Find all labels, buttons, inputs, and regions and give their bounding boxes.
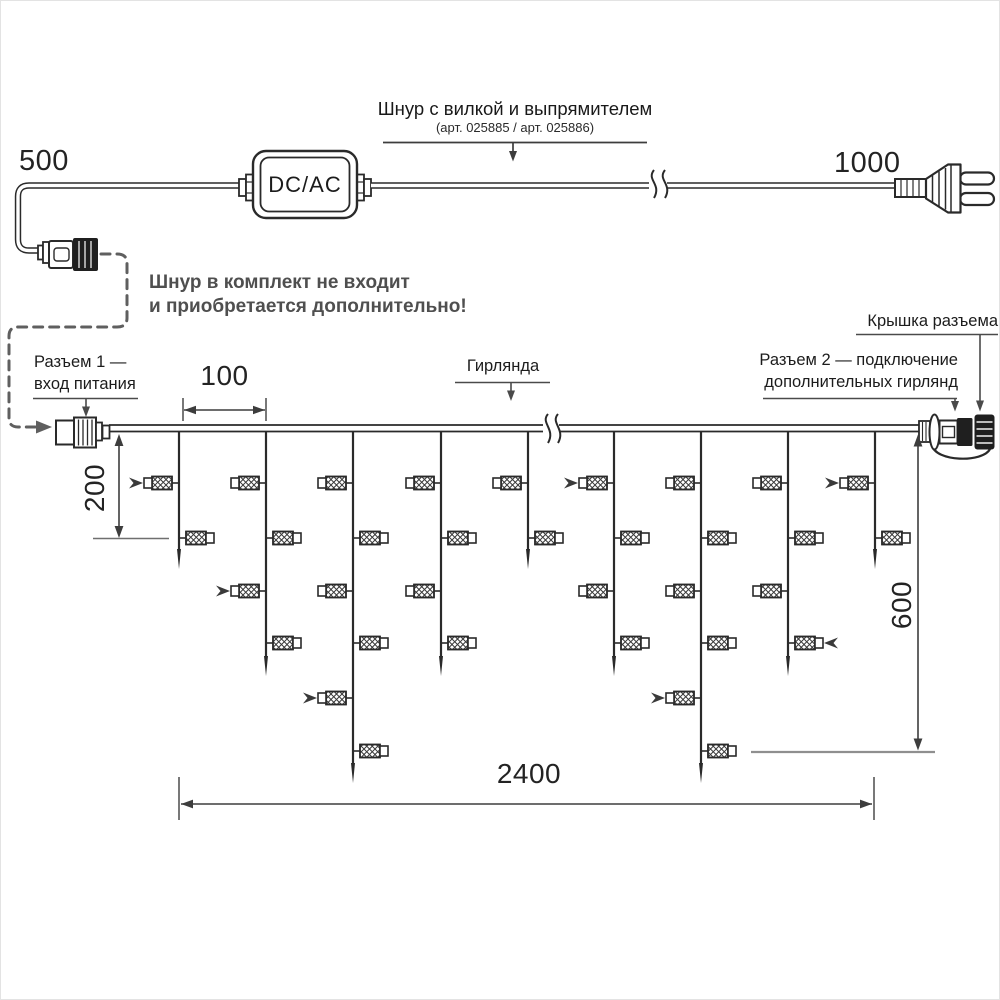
lamp-bulb bbox=[326, 477, 346, 490]
power-input-connector bbox=[38, 238, 98, 271]
lamp-bulb bbox=[360, 637, 380, 650]
dim-600-label: 600 bbox=[886, 565, 918, 645]
lamp-cap bbox=[728, 533, 736, 543]
wire-break-mark bbox=[556, 414, 561, 443]
arrow-down-icon bbox=[507, 391, 515, 402]
connector-1 bbox=[56, 418, 110, 448]
lamp-cap bbox=[902, 533, 910, 543]
lamp-cap bbox=[579, 478, 587, 488]
lamp-cap bbox=[231, 586, 239, 596]
lamp-bulb bbox=[761, 585, 781, 598]
lamp-bulb bbox=[708, 745, 728, 758]
lamp-cap bbox=[318, 586, 326, 596]
lamp-bulb bbox=[326, 692, 346, 705]
lamp-cap bbox=[728, 746, 736, 756]
note-line1: Шнур в комплект не входит bbox=[149, 271, 467, 295]
lamp-bulb bbox=[414, 477, 434, 490]
garland-drop bbox=[564, 431, 649, 676]
lamp-bulb bbox=[708, 637, 728, 650]
lamp-cap bbox=[666, 693, 674, 703]
note-line2: и приобретается дополнительно! bbox=[149, 295, 467, 319]
lamp-cap bbox=[753, 586, 761, 596]
arrow-right-icon bbox=[36, 421, 52, 434]
lamp-bulb bbox=[708, 532, 728, 545]
drop-tip bbox=[612, 656, 616, 676]
drop-tip bbox=[177, 549, 181, 569]
lamp-cap bbox=[380, 638, 388, 648]
lamp-bulb bbox=[535, 532, 555, 545]
connector1-label: Разъем 1 — вход питания bbox=[34, 352, 136, 395]
lamp-cap bbox=[579, 586, 587, 596]
drop-tip bbox=[351, 763, 355, 783]
mains-plug bbox=[895, 165, 994, 213]
garland-drop bbox=[406, 431, 476, 676]
garland-drop bbox=[651, 431, 736, 783]
connector2-label-line1: Разъем 2 — подключение bbox=[759, 350, 958, 372]
lamp-bulb bbox=[360, 532, 380, 545]
lamp-bulb bbox=[795, 532, 815, 545]
lamp-cap bbox=[815, 638, 823, 648]
cable-break-mark bbox=[663, 170, 668, 198]
cord-label: Шнур с вилкой и выпрямителем (арт. 02588… bbox=[375, 98, 655, 136]
drop-tip bbox=[873, 549, 877, 569]
cord-label-title: Шнур с вилкой и выпрямителем bbox=[375, 98, 655, 120]
lamp-cap bbox=[815, 533, 823, 543]
lamp-pointer-arrow-icon bbox=[129, 478, 143, 489]
lamp-pointer-arrow-icon bbox=[651, 693, 665, 704]
plug-prong bbox=[960, 173, 994, 185]
lamp-pointer-arrow-icon bbox=[824, 638, 838, 649]
lamp-cap bbox=[641, 638, 649, 648]
dim-200-label: 200 bbox=[79, 448, 111, 528]
garland-wire bbox=[109, 414, 919, 443]
arrow-down-icon bbox=[509, 151, 517, 162]
connector2-label-line2: дополнительных гирлянд bbox=[759, 372, 958, 394]
lamp-cap bbox=[493, 478, 501, 488]
drop-tip bbox=[699, 763, 703, 783]
garland-diagram bbox=[33, 335, 998, 821]
lamp-cap bbox=[144, 478, 152, 488]
lamp-cap bbox=[753, 478, 761, 488]
lamp-pointer-arrow-icon bbox=[216, 586, 230, 597]
dim-1000-label: 1000 bbox=[834, 147, 901, 180]
lamp-bulb bbox=[273, 637, 293, 650]
dashed-leader bbox=[9, 254, 127, 434]
wire-break-mark bbox=[546, 414, 551, 443]
dim-2400-label: 2400 bbox=[484, 758, 574, 790]
lamp-bulb bbox=[186, 532, 206, 545]
arrow-down-icon bbox=[82, 407, 90, 418]
lamp-cap bbox=[318, 478, 326, 488]
lamp-cap bbox=[641, 533, 649, 543]
lamp-cap bbox=[666, 478, 674, 488]
lamp-bulb bbox=[795, 637, 815, 650]
lamp-pointer-arrow-icon bbox=[825, 478, 839, 489]
lamp-cap bbox=[380, 746, 388, 756]
drop-tip bbox=[439, 656, 443, 676]
diagram-page: Шнур с вилкой и выпрямителем (арт. 02588… bbox=[0, 0, 1000, 1000]
converter-label: DC/AC bbox=[259, 172, 351, 198]
lamp-cap bbox=[293, 638, 301, 648]
connector-2 bbox=[919, 415, 995, 459]
lamp-cap bbox=[206, 533, 214, 543]
lamp-bulb bbox=[448, 532, 468, 545]
cable-break-mark bbox=[652, 170, 657, 198]
lamp-bulb bbox=[674, 585, 694, 598]
cord-label-leader bbox=[383, 143, 647, 162]
connector2-label: Разъем 2 — подключение дополнительных ги… bbox=[759, 350, 958, 393]
cap-label: Крышка разъема bbox=[854, 311, 998, 333]
lamp-bulb bbox=[501, 477, 521, 490]
lamp-cap bbox=[666, 586, 674, 596]
lamp-pointer-arrow-icon bbox=[564, 478, 578, 489]
garland-drop bbox=[753, 431, 838, 676]
lamp-bulb bbox=[448, 637, 468, 650]
lamp-cap bbox=[293, 533, 301, 543]
lamp-bulb bbox=[674, 477, 694, 490]
lamp-pointer-arrow-icon bbox=[303, 693, 317, 704]
lamp-bulb bbox=[848, 477, 868, 490]
drop-tip bbox=[264, 656, 268, 676]
drop-tip bbox=[786, 656, 790, 676]
lamp-cap bbox=[555, 533, 563, 543]
connector1-label-line2: вход питания bbox=[34, 374, 136, 396]
drops-layer bbox=[129, 431, 910, 783]
lamp-cap bbox=[840, 478, 848, 488]
garland-drop bbox=[216, 431, 301, 676]
lamp-cap bbox=[406, 478, 414, 488]
dim-100-label: 100 bbox=[183, 360, 266, 392]
lamp-bulb bbox=[587, 585, 607, 598]
dimension-100 bbox=[183, 398, 266, 421]
garland-drop bbox=[825, 431, 910, 569]
lamp-bulb bbox=[414, 585, 434, 598]
garland-drop bbox=[493, 431, 563, 569]
lamp-bulb bbox=[587, 477, 607, 490]
lamp-cap bbox=[406, 586, 414, 596]
garland-label: Гирлянда bbox=[453, 356, 553, 378]
lamp-cap bbox=[468, 533, 476, 543]
connector1-label-line1: Разъем 1 — bbox=[34, 352, 136, 374]
lamp-bulb bbox=[621, 532, 641, 545]
lamp-bulb bbox=[621, 637, 641, 650]
dim-500-label: 500 bbox=[19, 145, 69, 178]
drop-tip bbox=[526, 549, 530, 569]
lamp-bulb bbox=[239, 477, 259, 490]
plug-prong bbox=[960, 193, 994, 205]
lamp-bulb bbox=[360, 745, 380, 758]
lamp-bulb bbox=[674, 692, 694, 705]
lamp-cap bbox=[318, 693, 326, 703]
connector-cap bbox=[975, 415, 995, 450]
lamp-cap bbox=[468, 638, 476, 648]
not-included-note: Шнур в комплект не входит и приобретаетс… bbox=[149, 271, 467, 318]
lamp-bulb bbox=[273, 532, 293, 545]
lamp-cap bbox=[231, 478, 239, 488]
lamp-bulb bbox=[152, 477, 172, 490]
garland-drop bbox=[129, 431, 214, 569]
arrow-down-icon bbox=[976, 401, 984, 412]
lamp-bulb bbox=[882, 532, 902, 545]
cord-label-art-numbers: (арт. 025885 / арт. 025886) bbox=[375, 120, 655, 136]
lamp-cap bbox=[380, 533, 388, 543]
lamp-cap bbox=[728, 638, 736, 648]
arrow-down-icon bbox=[951, 401, 959, 412]
garland-drop bbox=[303, 431, 388, 783]
cable-1000 bbox=[371, 170, 898, 198]
lamp-bulb bbox=[239, 585, 259, 598]
lamp-bulb bbox=[326, 585, 346, 598]
lamp-bulb bbox=[761, 477, 781, 490]
